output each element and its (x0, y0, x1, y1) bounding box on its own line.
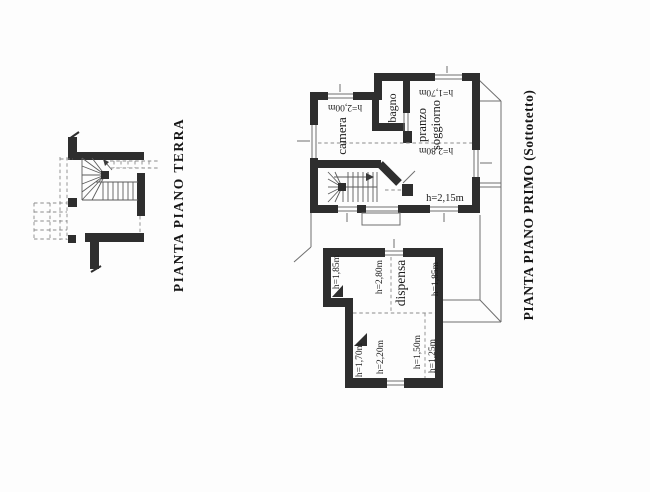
stair-newel-post (338, 183, 346, 191)
wall-camera-hall (318, 160, 381, 168)
camera-left-window (297, 125, 316, 158)
dispensa-wall-left-upper (323, 257, 331, 298)
first-floor-title: PIANTA PIANO PRIMO (Sottotetto) (521, 90, 536, 321)
bagno-label: bagno (385, 93, 399, 122)
camera-height-label: h=2,00m (327, 102, 362, 112)
stair-newel-post (101, 171, 109, 179)
wall-bagno-south (372, 123, 405, 131)
dispensa-h-mid-bottom: h=2,20m (376, 339, 386, 374)
ground-floor-plan: PIANTA PIANO TERRA (34, 118, 186, 292)
stair-treads-upper (348, 172, 373, 187)
pranzo-top-window (435, 66, 462, 79)
stair-treads-lower (343, 187, 373, 202)
dispensa-wall-step (323, 298, 353, 307)
roof-hip-top-right (478, 79, 501, 101)
pranzo-label-line1: pranzo (415, 108, 429, 142)
pranzo-ridge-height-label: h=2,80m (418, 145, 453, 155)
pranzo-eave-height-label: h=1,70m (418, 87, 453, 97)
wall-bottom (85, 233, 144, 242)
dispensa-wall-left-lower (345, 307, 353, 378)
camera-label: camera (334, 117, 349, 155)
wall-right (137, 173, 145, 216)
dispensa-h-left-top: h=1,85m (332, 254, 342, 289)
dispensa-wall-bottom (345, 378, 387, 388)
pranzo-label-line2: soggiorno (429, 100, 443, 150)
exterior-stair-dashed-grid (34, 203, 67, 239)
dispensa-label: dispensa (393, 260, 408, 307)
dispensa-h-mid-top: h=2,80m (375, 259, 385, 294)
stair-treads (103, 182, 133, 200)
wall-lower-vertical (90, 242, 99, 269)
hall-height-label: h=2,15m (426, 193, 464, 204)
wall-top-bagno-pranzo (375, 73, 435, 81)
first-floor-plan: camera h=2,00m bagno pranzo soggiorno h=… (294, 66, 536, 388)
wall-left (310, 92, 318, 125)
wall-right (472, 81, 480, 150)
ground-floor-title: PIANTA PIANO TERRA (171, 118, 186, 292)
hall-door-leaf (403, 171, 415, 183)
dispensa-h-right: h=1,85m (431, 261, 441, 296)
window-sill-projection (362, 213, 400, 225)
camera-top-window (328, 84, 353, 98)
dispensa-h-right-bottom-1: h=1,50m (413, 334, 423, 369)
roof-hip-left (294, 247, 311, 262)
stair-direction-arrow (334, 173, 374, 181)
wall-stub-low-left (68, 235, 76, 243)
wall-bagno-pranzo (403, 81, 410, 113)
stair-upper-flight-dashed (110, 161, 158, 168)
ground-floor-projection-dashed (34, 157, 140, 240)
wall-bottom (310, 205, 338, 213)
ground-floor-staircase (82, 158, 158, 200)
roof-hip-bottom-right (480, 300, 501, 322)
pranzo-right-window (474, 150, 492, 177)
floor-plan-sheet: PIANTA PIANO TERRA (0, 0, 650, 492)
wall-camera-bagno (372, 100, 379, 123)
dispensa-h-right-bottom-2: h=1,25m (428, 338, 438, 373)
floor-plan-drawing: PIANTA PIANO TERRA (0, 0, 650, 492)
dispensa-h-left-bottom: h=1,70m (355, 342, 365, 377)
wall-stub-hall (402, 184, 413, 196)
ground-floor-walls (68, 132, 145, 272)
wall-diagonal-hall (380, 164, 399, 183)
wall-stub-mid-left (68, 198, 77, 207)
